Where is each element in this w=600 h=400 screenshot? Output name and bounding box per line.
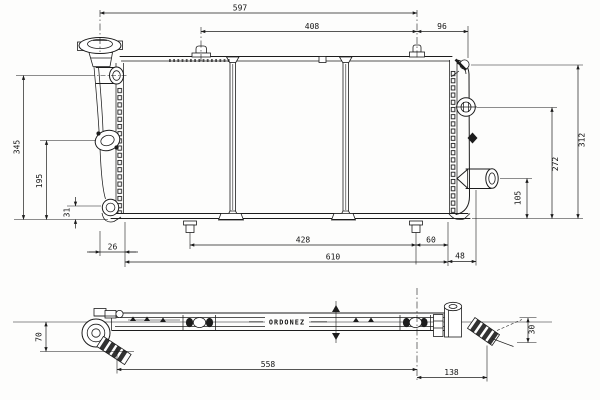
dim-length-558: 558 — [117, 347, 417, 374]
bottom-feet — [219, 214, 356, 221]
divider-tube-right — [340, 57, 353, 218]
dim-bottom-inner-428: 428 — [190, 233, 416, 250]
top-notch — [319, 57, 326, 63]
dim-label-70: 70 — [35, 332, 44, 342]
dim-right-outlet-105: 105 — [500, 179, 532, 219]
dim-label-26: 26 — [108, 243, 118, 252]
dim-label-272: 272 — [551, 157, 560, 172]
flange-bolt — [114, 145, 118, 149]
dim-label-138: 138 — [444, 368, 459, 377]
brand-text: ORDONEZ — [269, 319, 305, 327]
dim-label-610: 610 — [326, 253, 341, 262]
radiator-technical-drawing: 597 408 96 345 195 31 — [0, 0, 600, 400]
dim-label-105: 105 — [514, 191, 523, 206]
drain-bolt — [456, 98, 478, 117]
dim-top-width-597: 597 — [100, 4, 417, 14]
dim-bottom-stud-60: 60 — [416, 233, 448, 265]
dim-label-60: 60 — [426, 236, 436, 245]
right-outlet-pipe — [457, 169, 498, 189]
dim-label-558: 558 — [261, 360, 276, 369]
dim-top-inner-408: 408 — [201, 22, 417, 32]
left-tube-ends — [117, 87, 122, 213]
right-tank — [449, 60, 498, 220]
drawing-canvas: 597 408 96 345 195 31 — [0, 0, 600, 400]
dim-right-138: 138 — [417, 346, 487, 382]
dim-bottom-left-26: 26 — [87, 222, 138, 267]
centerlines — [100, 10, 417, 62]
radiator-core — [111, 57, 470, 221]
dim-label-195: 195 — [35, 174, 44, 189]
dim-label-48: 48 — [455, 252, 465, 261]
dim-label-408: 408 — [305, 22, 320, 31]
dim-depth-30: 30 — [497, 318, 537, 343]
divider-tube-left — [227, 57, 240, 218]
dim-label-345: 345 — [13, 140, 22, 155]
leader-line — [492, 339, 514, 347]
dim-left-inlet-195: 195 — [35, 141, 96, 220]
left-tank — [78, 38, 124, 222]
left-hose — [97, 336, 131, 364]
dim-label-30: 30 — [528, 325, 537, 335]
dim-label-96: 96 — [437, 22, 447, 31]
dim-right-height-312: 312 — [471, 65, 587, 219]
mounting-studs — [184, 45, 425, 233]
bottom-view: ORDONEZ — [13, 288, 552, 382]
dim-bottom-width-610: 610 — [125, 222, 448, 266]
dim-label-312: 312 — [578, 133, 587, 148]
flange-bolt — [96, 131, 100, 135]
front-view: 597 408 96 345 195 31 — [13, 4, 587, 268]
dim-label-597: 597 — [233, 4, 248, 13]
right-tube-ends — [451, 70, 456, 213]
outlet-elbow-bottom — [434, 302, 514, 346]
dim-label-31: 31 — [63, 208, 72, 218]
dim-left-outlet-31: 31 — [63, 197, 102, 229]
dim-label-428: 428 — [296, 236, 311, 245]
filler-neck-bottom — [82, 309, 131, 365]
